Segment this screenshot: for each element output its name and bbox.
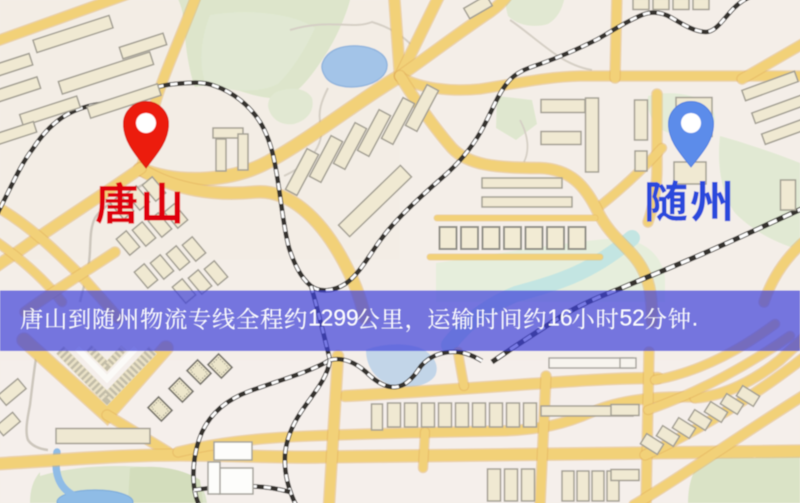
svg-text:.: .: [692, 305, 698, 331]
svg-text:52: 52: [620, 305, 645, 331]
svg-text:16: 16: [547, 305, 572, 331]
svg-text:1299: 1299: [308, 305, 359, 331]
